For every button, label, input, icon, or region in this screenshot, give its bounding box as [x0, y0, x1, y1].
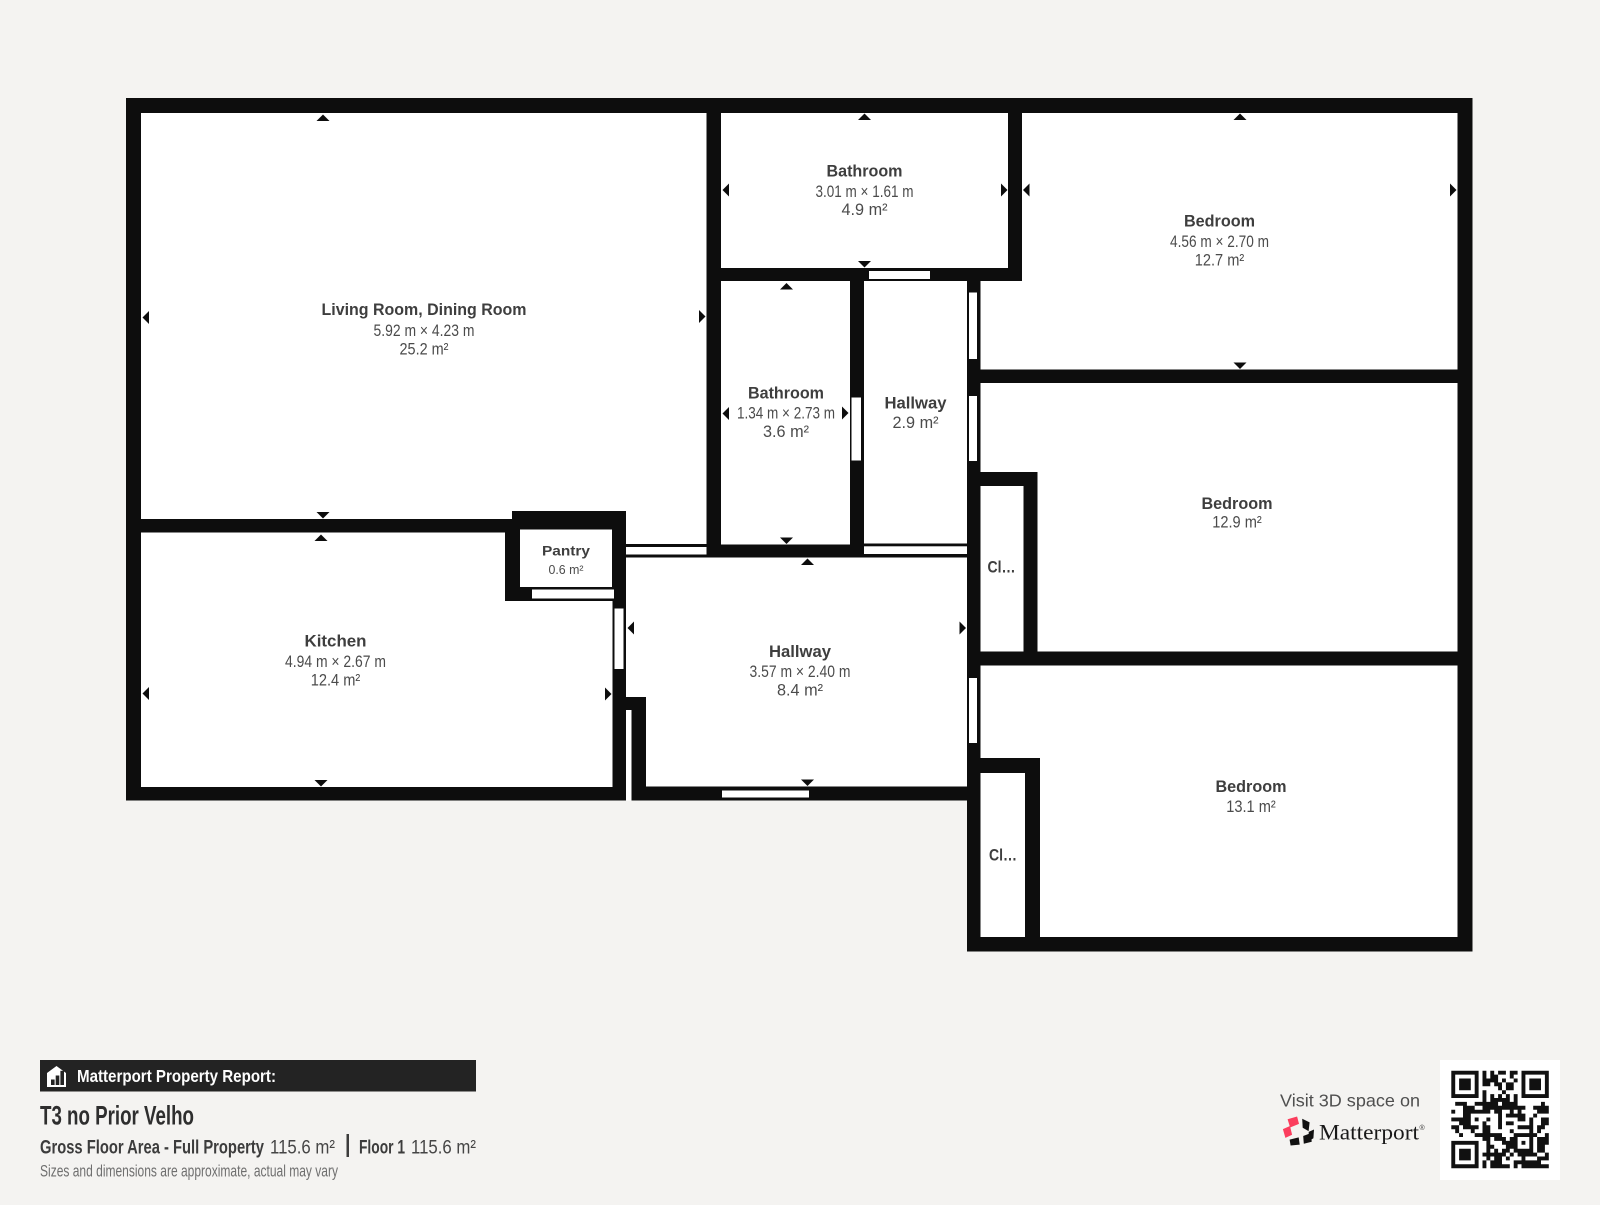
svg-text:4.9 m²: 4.9 m²	[842, 200, 888, 219]
svg-text:Bathroom: Bathroom	[748, 384, 824, 403]
svg-text:Cl…: Cl…	[988, 558, 1016, 577]
svg-text:12.7 m²: 12.7 m²	[1195, 251, 1245, 270]
svg-text:3.57 m × 2.40 m: 3.57 m × 2.40 m	[750, 662, 851, 681]
svg-text:Living Room, Dining Room: Living Room, Dining Room	[322, 300, 527, 319]
svg-text:0.6 m²: 0.6 m²	[549, 563, 584, 577]
svg-text:5.92 m × 4.23 m: 5.92 m × 4.23 m	[374, 321, 475, 340]
svg-text:115.6 m²: 115.6 m²	[270, 1138, 335, 1159]
svg-text:12.9 m²: 12.9 m²	[1212, 513, 1262, 532]
svg-text:8.4 m²: 8.4 m²	[777, 681, 823, 700]
svg-text:Gross Floor Area - Full Proper: Gross Floor Area - Full Property	[40, 1138, 264, 1159]
svg-text:Matterport: Matterport	[1319, 1120, 1419, 1145]
svg-text:Sizes and dimensions are appro: Sizes and dimensions are approximate, ac…	[40, 1163, 339, 1181]
svg-text:Bathroom: Bathroom	[827, 162, 903, 181]
svg-text:Hallway: Hallway	[769, 642, 832, 661]
svg-text:Pantry: Pantry	[542, 544, 591, 559]
svg-text:13.1 m²: 13.1 m²	[1226, 797, 1276, 816]
svg-text:Cl…: Cl…	[989, 846, 1017, 865]
svg-text:Matterport Property Report:: Matterport Property Report:	[77, 1066, 276, 1086]
svg-text:T3 no Prior Velho: T3 no Prior Velho	[40, 1101, 194, 1131]
svg-text:2.9 m²: 2.9 m²	[893, 413, 939, 432]
svg-text:Visit 3D space on: Visit 3D space on	[1280, 1091, 1420, 1111]
svg-text:Floor 1: Floor 1	[359, 1138, 405, 1159]
svg-text:115.6 m²: 115.6 m²	[411, 1138, 476, 1159]
svg-text:Bedroom: Bedroom	[1216, 777, 1287, 796]
svg-text:Bedroom: Bedroom	[1184, 212, 1255, 231]
svg-text:4.56 m × 2.70 m: 4.56 m × 2.70 m	[1170, 232, 1269, 251]
svg-text:12.4 m²: 12.4 m²	[311, 671, 361, 690]
svg-text:Kitchen: Kitchen	[305, 632, 367, 651]
svg-text:25.2 m²: 25.2 m²	[400, 340, 449, 359]
svg-text:4.94 m × 2.67 m: 4.94 m × 2.67 m	[285, 652, 386, 671]
svg-text:Hallway: Hallway	[885, 394, 948, 413]
svg-text:Bedroom: Bedroom	[1202, 494, 1273, 513]
svg-text:1.34 m × 2.73 m: 1.34 m × 2.73 m	[737, 404, 835, 423]
svg-text:®: ®	[1420, 1124, 1426, 1132]
svg-text:3.6 m²: 3.6 m²	[763, 422, 809, 441]
svg-text:3.01 m × 1.61 m: 3.01 m × 1.61 m	[816, 182, 914, 201]
